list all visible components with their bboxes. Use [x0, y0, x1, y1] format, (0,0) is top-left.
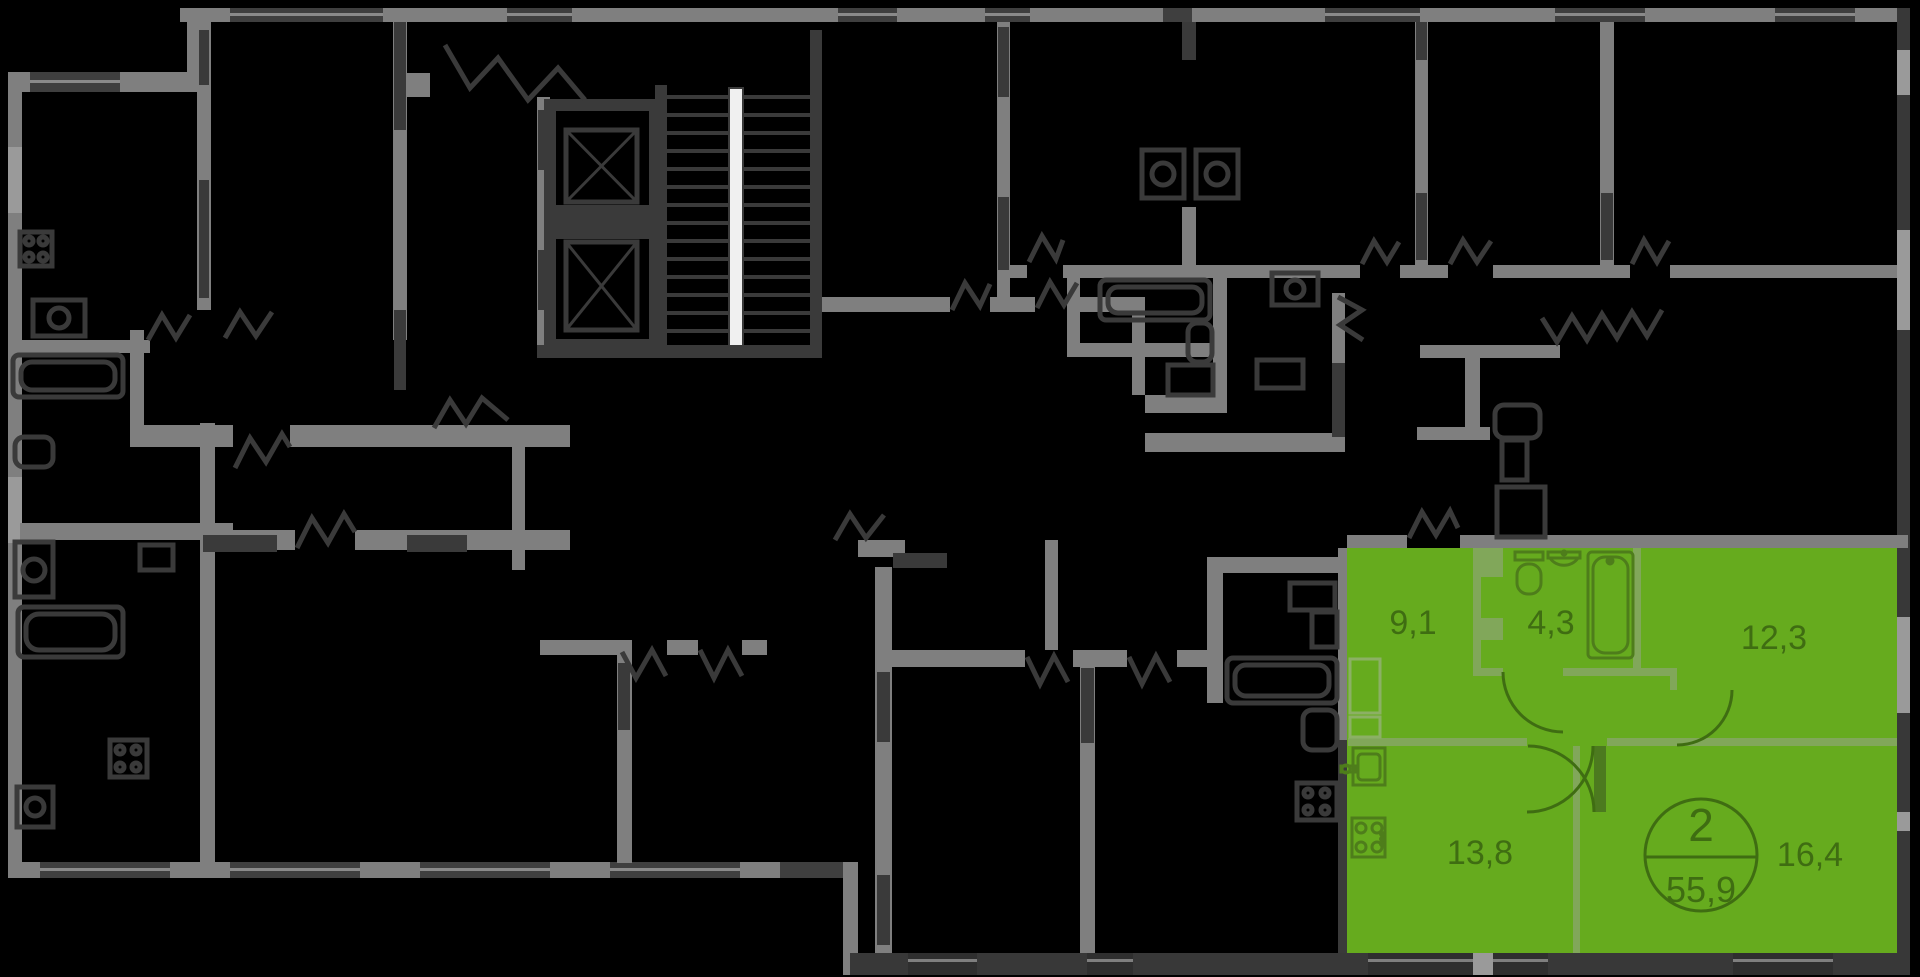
apartment-highlighted[interactable]: 9,1 4,3 12,3 13,8 16,4 2 55,9	[1341, 548, 1897, 953]
room-label-hallway: 9,1	[1389, 604, 1436, 642]
room-label-bedroom: 12,3	[1741, 619, 1807, 657]
door-leaf	[1594, 746, 1606, 812]
room-label-living-room: 16,4	[1777, 836, 1843, 874]
room-label-kitchen: 13,8	[1447, 834, 1513, 872]
room-label-bathroom: 4,3	[1527, 604, 1574, 642]
badge-total-area: 55,9	[1666, 869, 1736, 910]
floor-plan: 9,1 4,3 12,3 13,8 16,4 2 55,9	[0, 0, 1920, 977]
badge-rooms-count: 2	[1688, 799, 1714, 851]
